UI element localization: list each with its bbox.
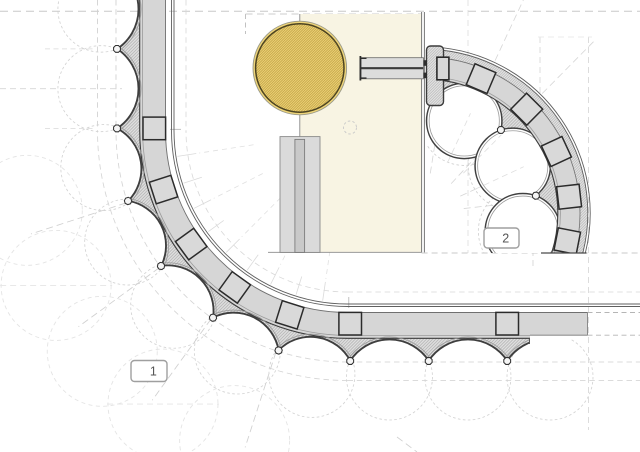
svg-text:1: 1: [150, 365, 157, 379]
svg-text:2: 2: [502, 232, 509, 246]
